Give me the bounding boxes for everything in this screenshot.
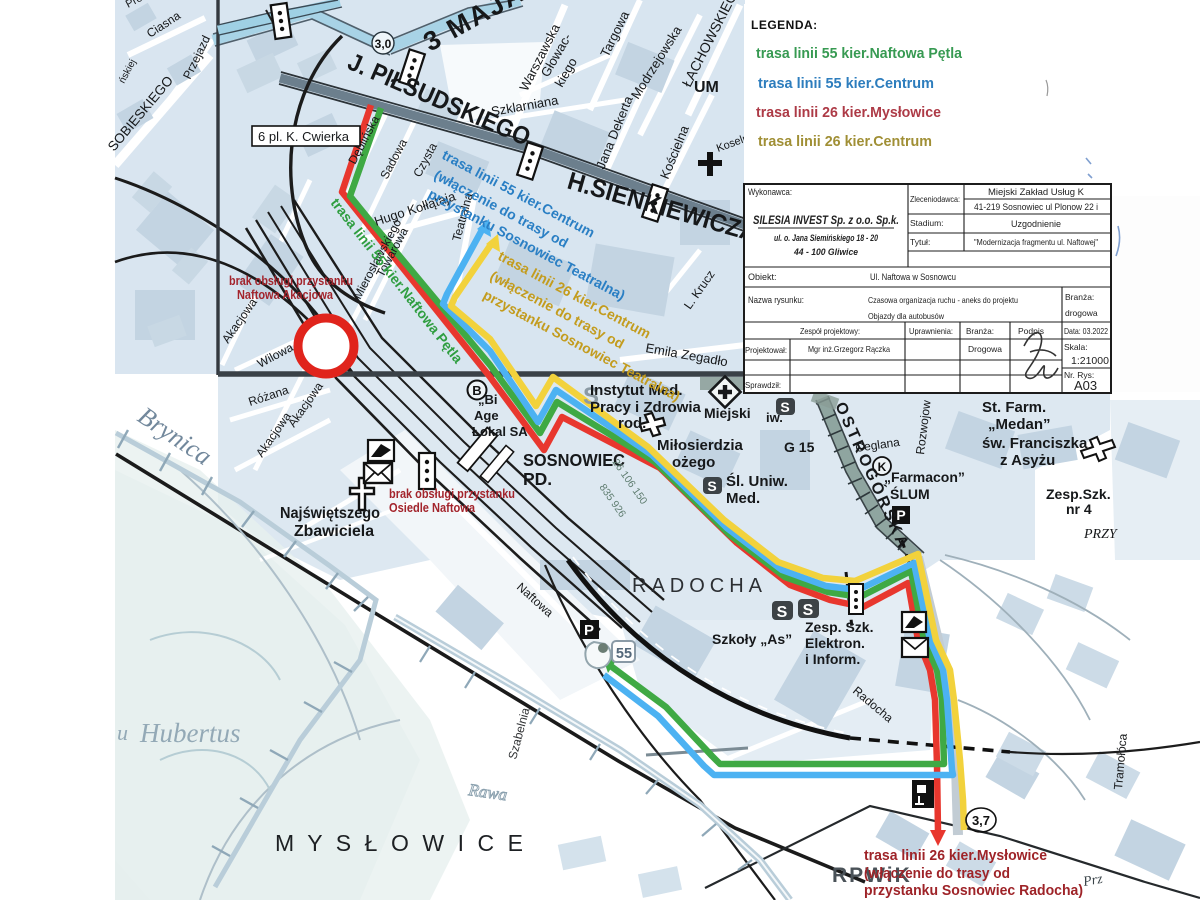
svg-text:"Modernizacja fragmentu ul. Na: "Modernizacja fragmentu ul. Naftowej" bbox=[974, 237, 1098, 247]
svg-text:Uzgodnienie: Uzgodnienie bbox=[1011, 219, 1061, 230]
svg-text:Zbawiciela: Zbawiciela bbox=[294, 523, 374, 540]
svg-text:i Inform.: i Inform. bbox=[805, 651, 860, 667]
svg-text:Age: Age bbox=[474, 408, 499, 423]
svg-text:Zesp.Szk.: Zesp.Szk. bbox=[1046, 486, 1111, 502]
svg-text:6 pl. K. Cwierka: 6 pl. K. Cwierka bbox=[258, 129, 350, 144]
svg-text:PD.: PD. bbox=[523, 469, 552, 489]
svg-text:trasa linii 26 kier.Mysłowice: trasa linii 26 kier.Mysłowice bbox=[756, 104, 941, 121]
svg-text:Hubertus: Hubertus bbox=[139, 718, 241, 748]
svg-text:44 - 100 Gliwice: 44 - 100 Gliwice bbox=[793, 247, 859, 258]
svg-text:S: S bbox=[803, 602, 814, 619]
svg-text:Zespół projektowy:: Zespół projektowy: bbox=[800, 326, 860, 336]
svg-text:u: u bbox=[117, 720, 128, 745]
svg-text:Miejski Zakład Usług K: Miejski Zakład Usług K bbox=[988, 187, 1084, 197]
svg-text:Branża:: Branża: bbox=[1065, 292, 1094, 302]
svg-text:Wykonawca:: Wykonawca: bbox=[748, 187, 792, 197]
svg-text:„Bi: „Bi bbox=[478, 392, 498, 407]
svg-text:P: P bbox=[584, 622, 594, 639]
svg-text:trasa linii 26 kier.Mysłowice: trasa linii 26 kier.Mysłowice bbox=[864, 847, 1047, 864]
svg-text:Objazdy dla autobusów: Objazdy dla autobusów bbox=[868, 311, 945, 321]
svg-text:Najświętszego: Najświętszego bbox=[280, 505, 380, 522]
svg-text:Obiekt:: Obiekt: bbox=[748, 272, 777, 282]
svg-text:SILESIA INVEST Sp. z o.o. Sp.k: SILESIA INVEST Sp. z o.o. Sp.k. bbox=[753, 213, 899, 227]
svg-text:Projektował:: Projektował: bbox=[745, 345, 787, 355]
svg-text:z Asyżu: z Asyżu bbox=[1000, 452, 1055, 469]
svg-text:Sprawdził:: Sprawdził: bbox=[745, 380, 781, 390]
svg-text:55: 55 bbox=[616, 646, 632, 662]
svg-text:Stadium:: Stadium: bbox=[910, 218, 944, 228]
svg-text:Śl. Uniw.: Śl. Uniw. bbox=[726, 472, 788, 490]
svg-text:Tytuł:: Tytuł: bbox=[910, 237, 930, 247]
svg-text:Elektron.: Elektron. bbox=[805, 635, 865, 651]
svg-text:Szkoły „As”: Szkoły „As” bbox=[712, 631, 792, 647]
svg-text:trasa linii 55 kier.Naftowa Pę: trasa linii 55 kier.Naftowa Pętla bbox=[756, 45, 963, 62]
svg-text:Branża:: Branża: bbox=[966, 326, 994, 336]
svg-text:Drogowa: Drogowa bbox=[968, 344, 1002, 354]
svg-text:UM: UM bbox=[694, 79, 719, 96]
svg-text:S: S bbox=[777, 604, 788, 621]
svg-text:ul. o. Jana Siemińskiego 18 -: ul. o. Jana Siemińskiego 18 - 20 bbox=[774, 233, 878, 243]
svg-text:Naftowa Akacjowa: Naftowa Akacjowa bbox=[237, 287, 334, 302]
svg-text:PRZY: PRZY bbox=[1083, 527, 1119, 542]
svg-text:St. Farm.: St. Farm. bbox=[982, 399, 1046, 416]
svg-text:Uprawnienia:: Uprawnienia: bbox=[909, 326, 953, 336]
svg-text:A03: A03 bbox=[1074, 378, 1097, 393]
svg-text:Miłosierdzia: Miłosierdzia bbox=[657, 437, 744, 454]
svg-text:Pracy i Zdrowia: Pracy i Zdrowia bbox=[590, 399, 702, 416]
svg-text:ŚLUM: ŚLUM bbox=[890, 485, 930, 502]
svg-text:Ul. Naftowa w Sosnowcu: Ul. Naftowa w Sosnowcu bbox=[870, 272, 956, 283]
svg-text:Miejski: Miejski bbox=[704, 405, 751, 421]
svg-text:Skala:: Skala: bbox=[1064, 342, 1088, 352]
svg-text:RADOCHA: RADOCHA bbox=[632, 575, 767, 597]
svg-text:trasa linii 26 kier.Centrum: trasa linii 26 kier.Centrum bbox=[758, 133, 932, 150]
svg-text:M Y S Ł O W I C E: M Y S Ł O W I C E bbox=[275, 830, 523, 856]
svg-text:(włączenie do trasy od: (włączenie do trasy od bbox=[864, 865, 1010, 882]
svg-text:G 15: G 15 bbox=[784, 439, 815, 455]
svg-text:Data: 03.2022: Data: 03.2022 bbox=[1064, 327, 1108, 336]
svg-text:św. Franciszka: św. Franciszka bbox=[982, 435, 1088, 452]
svg-text:S: S bbox=[707, 478, 716, 494]
svg-text:1:21000: 1:21000 bbox=[1071, 355, 1109, 367]
svg-text:brak obsługi przystanku: brak obsługi przystanku bbox=[389, 486, 515, 501]
svg-text:Mgr inż.Grzegorz Rączka: Mgr inż.Grzegorz Rączka bbox=[808, 344, 890, 354]
svg-text:rod.: rod. bbox=[618, 415, 646, 432]
svg-text:„Farmacon”: „Farmacon” bbox=[884, 469, 965, 485]
svg-text:3,7: 3,7 bbox=[972, 813, 990, 828]
svg-text:iw.: iw. bbox=[766, 410, 783, 425]
svg-text:trasa linii 55 kier.Centrum: trasa linii 55 kier.Centrum bbox=[758, 75, 934, 92]
svg-text:SOSNOWIEC: SOSNOWIEC bbox=[523, 450, 625, 470]
svg-text:Med.: Med. bbox=[726, 490, 760, 507]
svg-text:Osiedle Naftowa: Osiedle Naftowa bbox=[389, 500, 476, 515]
svg-text:LEGENDA:: LEGENDA: bbox=[751, 18, 818, 32]
svg-text:przystanku Sosnowiec Radocha): przystanku Sosnowiec Radocha) bbox=[864, 882, 1083, 899]
svg-text:Zleceniodawca:: Zleceniodawca: bbox=[910, 195, 960, 204]
svg-text:nr 4: nr 4 bbox=[1066, 501, 1092, 517]
svg-text:Nazwa rysunku:: Nazwa rysunku: bbox=[748, 295, 804, 305]
svg-text:ożego: ożego bbox=[672, 454, 715, 471]
svg-text:41-219 Sosnowiec ul Plonow 22: 41-219 Sosnowiec ul Plonow 22 i bbox=[974, 202, 1098, 212]
svg-text:Czasowa organizacja ruchu - an: Czasowa organizacja ruchu - aneks do pro… bbox=[868, 295, 1018, 305]
svg-text:Łokal SA: Łokal SA bbox=[472, 424, 528, 439]
svg-text:Zesp. Szk.: Zesp. Szk. bbox=[805, 619, 873, 635]
svg-text:3,0: 3,0 bbox=[375, 37, 392, 51]
svg-text:drogowa: drogowa bbox=[1065, 308, 1098, 318]
svg-text:„Medan”: „Medan” bbox=[988, 416, 1051, 433]
svg-text:brak obsługi przystanku: brak obsługi przystanku bbox=[229, 273, 353, 288]
